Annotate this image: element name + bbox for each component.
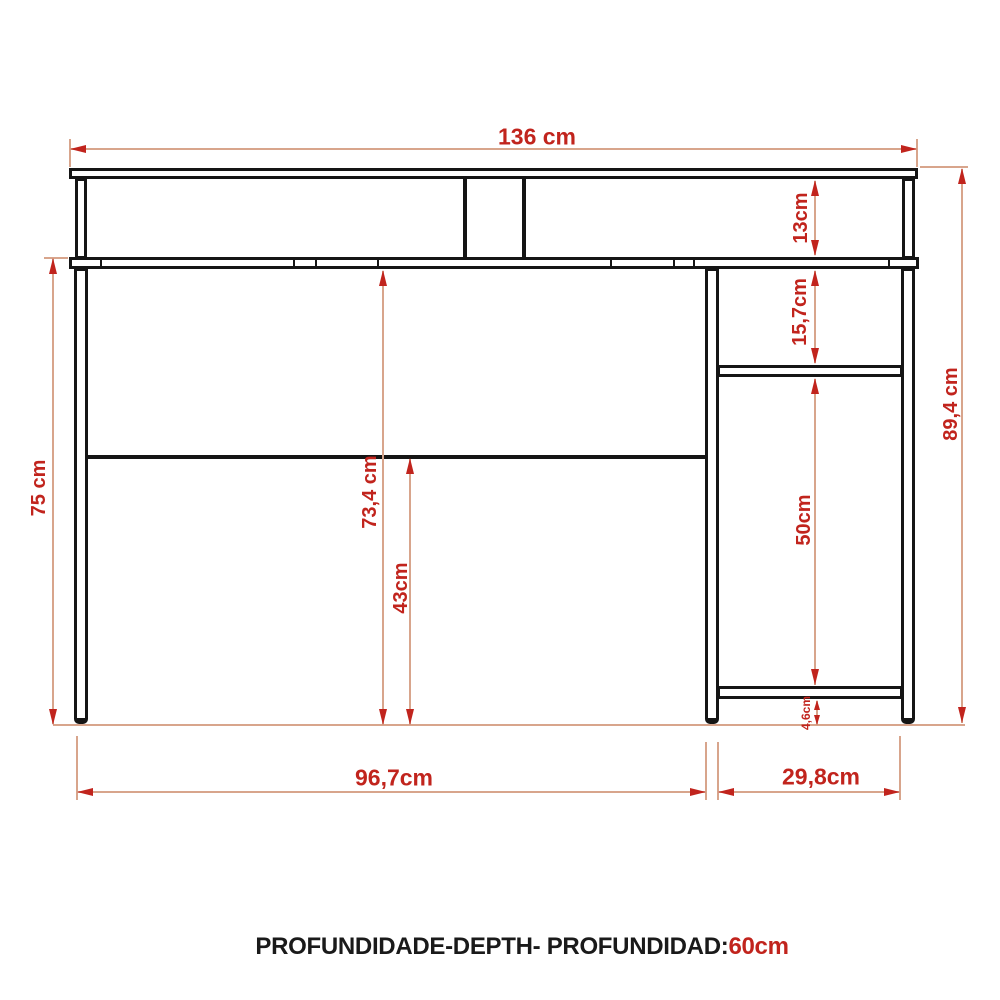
arrow-up-icon xyxy=(406,458,414,474)
dimension-line xyxy=(382,271,384,724)
dimension-line xyxy=(70,148,917,150)
desktop-joint-tick xyxy=(673,257,675,266)
arrow-down-icon xyxy=(406,709,414,725)
arrow-up-icon xyxy=(49,258,57,274)
arrow-down-icon xyxy=(811,348,819,364)
dim-label-left-span: 96,7cm xyxy=(355,767,433,790)
desktop-joint-tick xyxy=(610,257,612,266)
arrow-up-icon xyxy=(814,700,820,710)
arrow-up-icon xyxy=(811,378,819,394)
arrow-down-icon xyxy=(814,715,820,725)
arrow-right-icon xyxy=(901,145,917,153)
dim-label-total-width: 136 cm xyxy=(498,126,576,149)
dim-label-right-span: 29,8cm xyxy=(782,766,860,789)
dim-label-underside-height: 73,4 cm xyxy=(360,455,380,528)
riser-support-right xyxy=(902,178,915,259)
dim-label-left-height: 75 cm xyxy=(29,460,49,517)
riser-support-left xyxy=(75,178,87,259)
dimension-line xyxy=(961,169,963,723)
arrow-up-icon xyxy=(958,168,966,184)
riser-divider-right xyxy=(522,178,526,259)
depth-caption: PROFUNDIDADE-DEPTH- PROFUNDIDAD:60cm xyxy=(255,933,788,961)
cabinet-right-panel xyxy=(901,268,915,724)
arrow-up-icon xyxy=(811,270,819,286)
cabinet-mid-shelf xyxy=(717,365,903,377)
left-leg xyxy=(74,268,88,724)
dimension-line xyxy=(77,791,706,793)
riser-divider-left xyxy=(463,178,467,259)
desktop-joint-tick xyxy=(693,257,695,266)
dim-label-cabinet-opening: 50cm xyxy=(794,494,814,545)
dimension-line xyxy=(52,259,54,724)
arrow-left-icon xyxy=(70,145,86,153)
arrow-right-icon xyxy=(690,788,706,796)
dimension-line xyxy=(718,791,900,793)
ground-reference-line xyxy=(53,724,965,726)
depth-caption-label: PROFUNDIDADE-DEPTH- PROFUNDIDAD: xyxy=(255,933,728,960)
desktop-joint-tick xyxy=(315,257,317,266)
arrow-down-icon xyxy=(379,709,387,725)
arrow-down-icon xyxy=(49,709,57,725)
arrow-left-icon xyxy=(718,788,734,796)
arrow-up-icon xyxy=(379,270,387,286)
top-shelf-board xyxy=(69,168,918,179)
desktop-board xyxy=(69,257,919,269)
cabinet-left-panel xyxy=(705,268,719,724)
back-panel-edge xyxy=(88,455,705,459)
desktop-joint-tick xyxy=(377,257,379,266)
technical-drawing-canvas: 136 cm 13cm 15,7cm 50cm 4,6cm 89,4 cm xyxy=(0,0,1000,1000)
arrow-down-icon xyxy=(811,240,819,256)
extension-line xyxy=(916,139,918,167)
arrow-left-icon xyxy=(77,788,93,796)
dim-label-mid-panel-height: 43cm xyxy=(391,562,411,613)
arrow-down-icon xyxy=(958,707,966,723)
arrow-right-icon xyxy=(884,788,900,796)
desktop-joint-tick xyxy=(293,257,295,266)
extension-line xyxy=(69,139,71,167)
arrow-down-icon xyxy=(811,669,819,685)
desktop-joint-tick xyxy=(888,257,890,266)
dim-label-foot-height: 4,6cm xyxy=(800,696,812,730)
depth-caption-value: 60cm xyxy=(728,933,788,960)
dim-label-riser-height: 13cm xyxy=(791,192,811,243)
dim-label-total-height: 89,4 cm xyxy=(941,367,961,440)
desktop-joint-tick xyxy=(100,257,102,266)
arrow-up-icon xyxy=(811,180,819,196)
dim-label-upper-shelf-gap: 15,7cm xyxy=(790,278,810,346)
